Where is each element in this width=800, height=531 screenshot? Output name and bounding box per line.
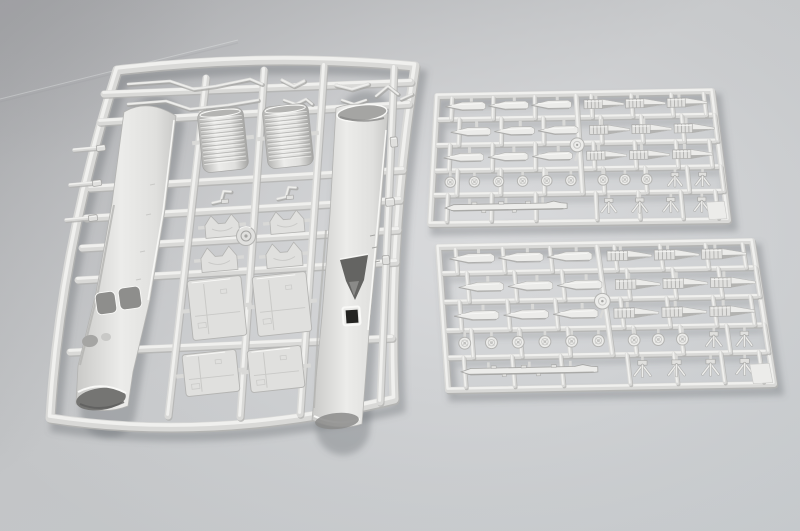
corner-tab [707, 201, 727, 219]
small-clip-part [390, 137, 398, 148]
small-clip-part [92, 179, 102, 186]
model-kit-sprues-photo [0, 0, 800, 531]
small-clip-part [96, 144, 106, 151]
corner-tab [750, 363, 773, 383]
small-clip-part [382, 255, 390, 265]
photo-stage [0, 0, 800, 531]
small-clip-part [88, 214, 98, 221]
small-clip-part [385, 198, 395, 207]
locating-boss [237, 227, 256, 246]
